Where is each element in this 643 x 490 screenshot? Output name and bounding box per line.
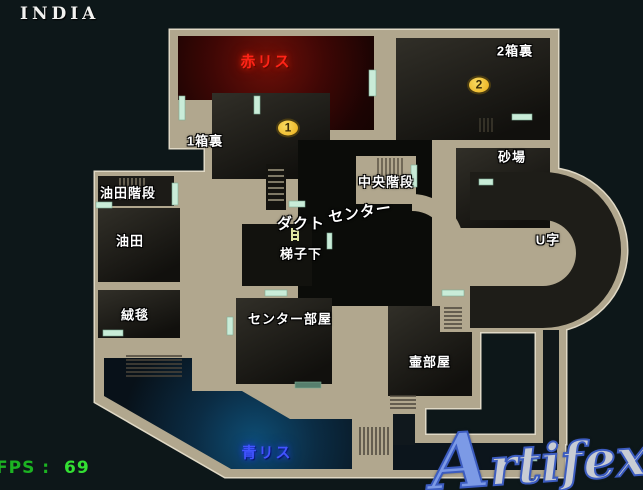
door [289, 201, 305, 207]
room-label-yuden-kaidan: 油田階段 [100, 183, 156, 202]
room-label-sunaba: 砂場 [498, 147, 526, 166]
door [479, 179, 493, 185]
door [103, 330, 123, 336]
door [227, 317, 233, 335]
fps-counter: FPS :69 [0, 458, 90, 478]
room-label-chuuou-kaidan: 中央階段 [358, 172, 414, 191]
fps-value: 69 [64, 458, 90, 478]
door [295, 382, 321, 388]
door [512, 114, 532, 120]
watermark: Artifex [428, 404, 643, 490]
door [369, 70, 376, 96]
door [327, 233, 332, 249]
room-label-yuden: 油田 [116, 231, 144, 250]
red-spawn-label: 赤リス [240, 51, 291, 72]
room-label-2hako-ura: 2箱裏 [497, 41, 533, 60]
room-label-u-ji: U字 [536, 230, 560, 249]
map-title: INDIA [20, 4, 99, 24]
door [179, 96, 185, 120]
game-map-screen: INDIA FPS :69 Artifex 赤リス 青リス 1 2 2箱裏 砂場… [0, 0, 643, 490]
room-label-hashigo-shita: 梯子下 [280, 244, 322, 263]
door [254, 96, 260, 114]
room-label-center-heya: センター部屋 [248, 309, 332, 328]
door [265, 290, 287, 296]
fps-label: FPS : [0, 458, 50, 478]
room-label-tsubo-heya: 壷部屋 [409, 352, 451, 371]
door [172, 183, 178, 205]
floor-pot-passage [393, 414, 415, 445]
map-marker-1: 1 [276, 119, 300, 138]
blue-spawn-label: 青リス [241, 442, 292, 463]
room-label-1hako-ura: 1箱裏 [187, 131, 223, 150]
room-label-dakuto: ダクト [277, 213, 325, 234]
ladder-stairwell [266, 164, 286, 210]
door [96, 202, 112, 208]
door [442, 290, 464, 296]
room-label-juutan: 絨毯 [121, 305, 149, 324]
map-marker-2: 2 [467, 76, 491, 95]
